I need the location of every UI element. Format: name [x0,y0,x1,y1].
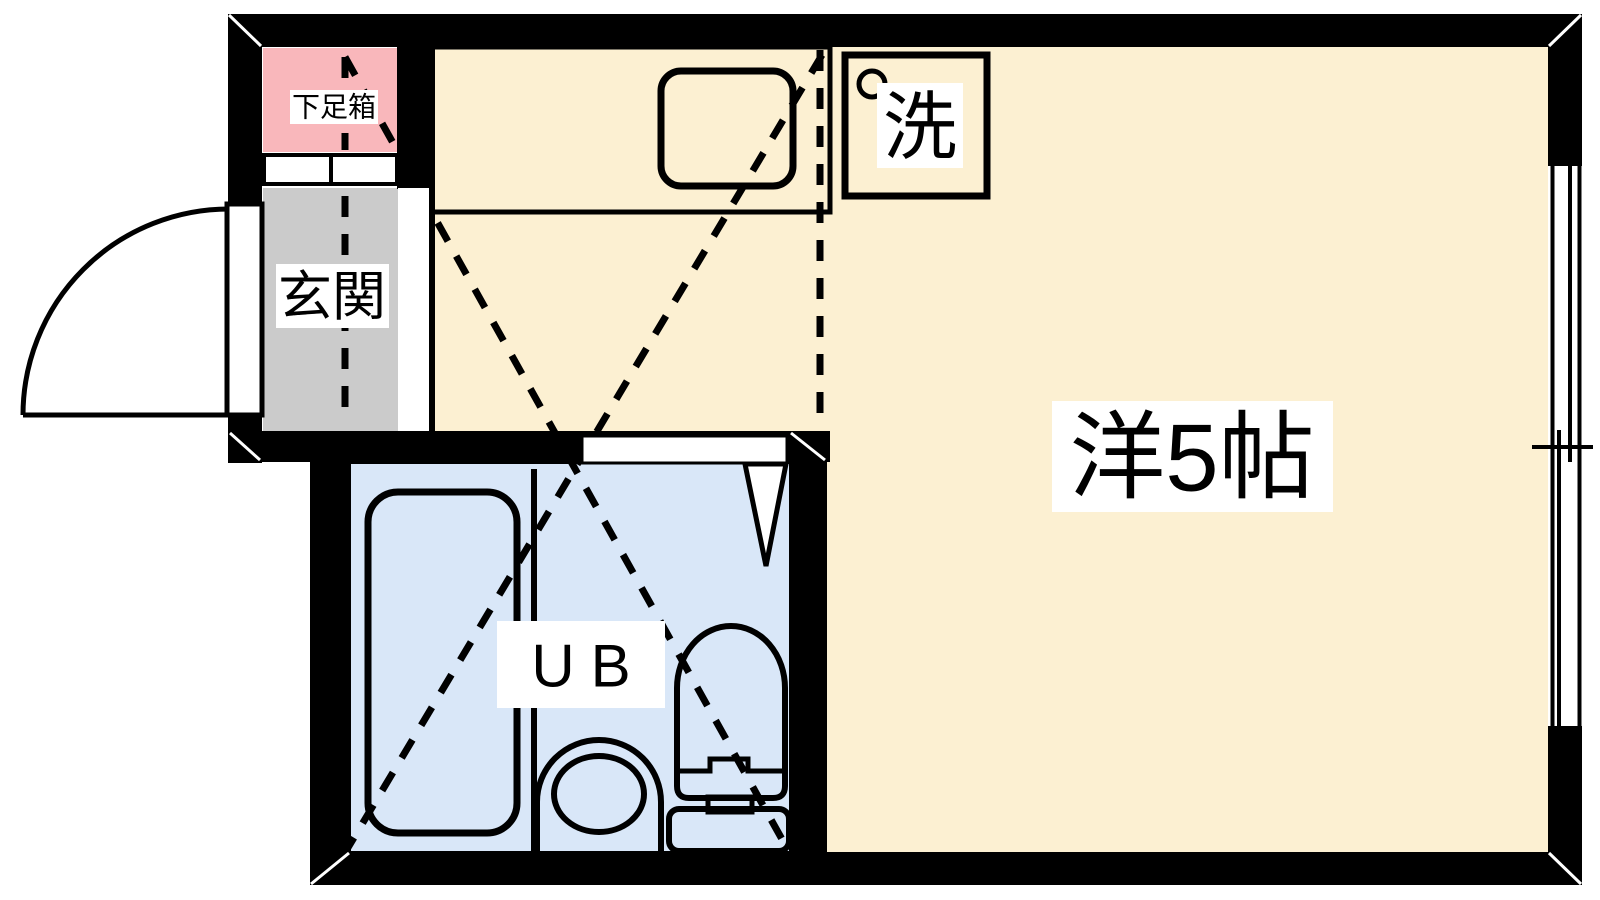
sliding-door-panel-left [264,155,331,184]
floor-plan: 下足箱 玄関 洗 UB 洋5帖 [0,0,1600,900]
unit-bath-label: UB [497,621,665,708]
shoe-box-sliding-doors [264,155,397,184]
wall-bath-right [790,431,827,852]
entrance-label-text: 玄関 [278,267,386,327]
entrance-door-arc [23,209,229,415]
floor-plan-canvas: 下足箱 玄関 洗 UB 洋5帖 [0,0,1600,900]
main-room-label: 洋5帖 [1052,401,1333,512]
washer-label-text: 洗 [883,86,957,169]
wall-kitchen-left-border [429,188,435,434]
unit-bath-door-opening [582,436,787,463]
main-room-label-text: 洋5帖 [1069,405,1314,512]
entrance-label: 玄関 [276,264,389,328]
wall-shoebox-right [397,47,435,189]
shoe-box-label-text: 下足箱 [292,92,376,123]
entrance-room-opening [398,188,429,431]
unit-bath-label-text: UB [531,633,646,700]
wall-top [228,14,1582,47]
entrance-door [23,204,262,415]
sliding-door-panel-right [331,155,397,184]
wall-right-upper [1548,14,1582,166]
wall-right-lower [1548,726,1582,885]
wall-bath-left [310,431,350,885]
entrance-door-leaf [227,204,262,415]
shoe-box-label: 下足箱 [290,90,378,124]
washer-label: 洗 [877,83,963,169]
wall-bottom [310,852,1582,885]
